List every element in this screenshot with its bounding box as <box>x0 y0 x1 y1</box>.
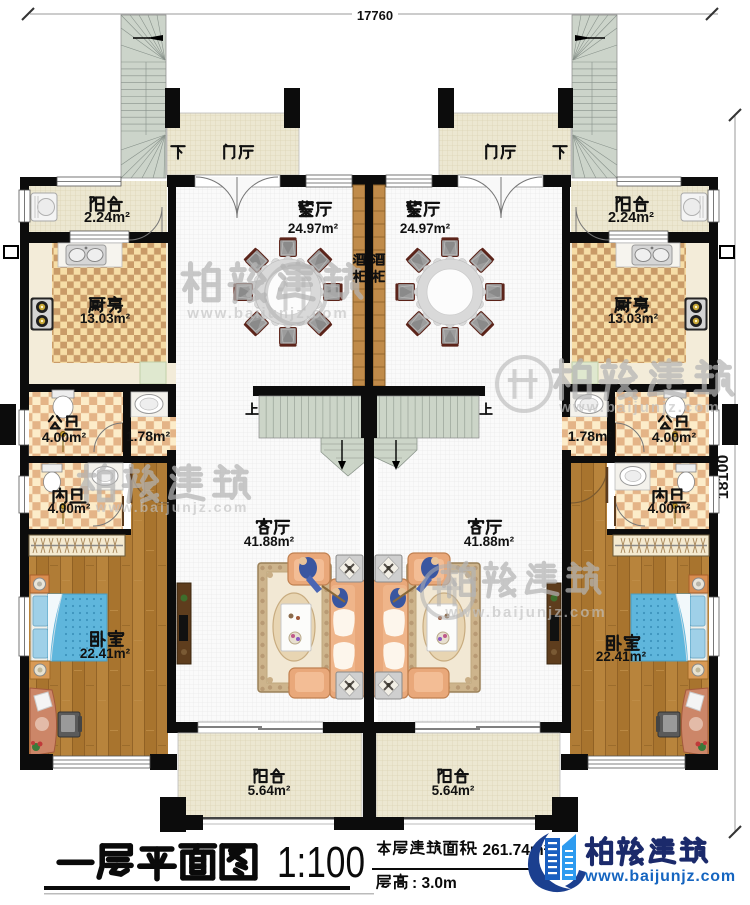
svg-text:41.88m²: 41.88m² <box>244 534 295 549</box>
svg-text:www.baijunjz.com: www.baijunjz.com <box>186 305 348 322</box>
svg-text:1.78m²: 1.78m² <box>126 428 171 444</box>
svg-text:22.41m²: 22.41m² <box>596 649 647 664</box>
svg-text:4.00m²: 4.00m² <box>652 429 697 445</box>
svg-text:: 3.0m: : 3.0m <box>412 875 457 892</box>
svg-text:24.97m²: 24.97m² <box>288 221 339 236</box>
svg-text:13.03m²: 13.03m² <box>80 311 131 326</box>
svg-text:www.baijunjz.com: www.baijunjz.com <box>95 499 249 515</box>
svg-text:www.baijunjz.com: www.baijunjz.com <box>444 604 606 621</box>
svg-text:5.64m²: 5.64m² <box>432 783 475 798</box>
svg-text:4.00m²: 4.00m² <box>48 501 91 516</box>
svg-text:1.78m²: 1.78m² <box>568 428 613 444</box>
svg-text:24.97m²: 24.97m² <box>400 221 451 236</box>
svg-text:41.88m²: 41.88m² <box>464 534 515 549</box>
svg-text:1:100: 1:100 <box>277 838 365 887</box>
svg-text:4.00m²: 4.00m² <box>42 429 87 445</box>
svg-text:www.baijunjz.com: www.baijunjz.com <box>558 399 720 416</box>
svg-text:13.03m²: 13.03m² <box>608 311 659 326</box>
svg-text:17760: 17760 <box>357 8 393 23</box>
svg-text:4.00m²: 4.00m² <box>648 501 691 516</box>
svg-text:www.baijunjz.com: www.baijunjz.com <box>584 868 736 885</box>
svg-text:2.24m²: 2.24m² <box>84 210 130 226</box>
svg-text:22.41m²: 22.41m² <box>80 646 131 661</box>
svg-text:5.64m²: 5.64m² <box>248 783 291 798</box>
svg-text:2.24m²: 2.24m² <box>608 210 654 226</box>
